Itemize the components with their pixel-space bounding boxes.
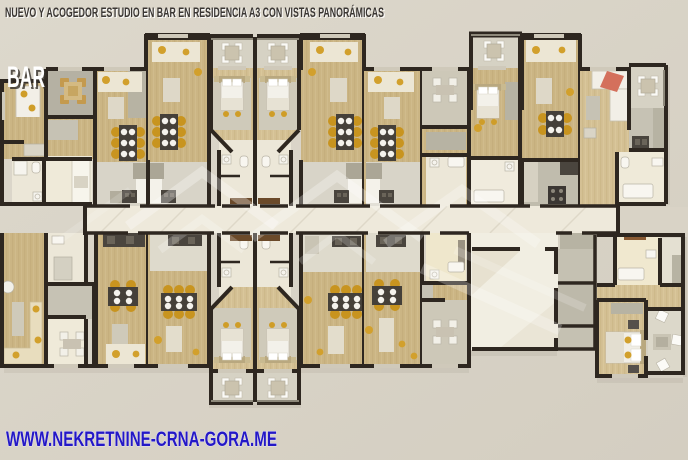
svg-text:NUEVO Y ACOGEDOR ESTUDIO EN BA: NUEVO Y ACOGEDOR ESTUDIO EN BAR EN RESID…	[5, 5, 384, 20]
svg-text:BAR: BAR	[7, 61, 45, 94]
svg-text:WWW.NEKRETNINE-CRNA-GORA.ME: WWW.NEKRETNINE-CRNA-GORA.ME	[6, 428, 277, 451]
